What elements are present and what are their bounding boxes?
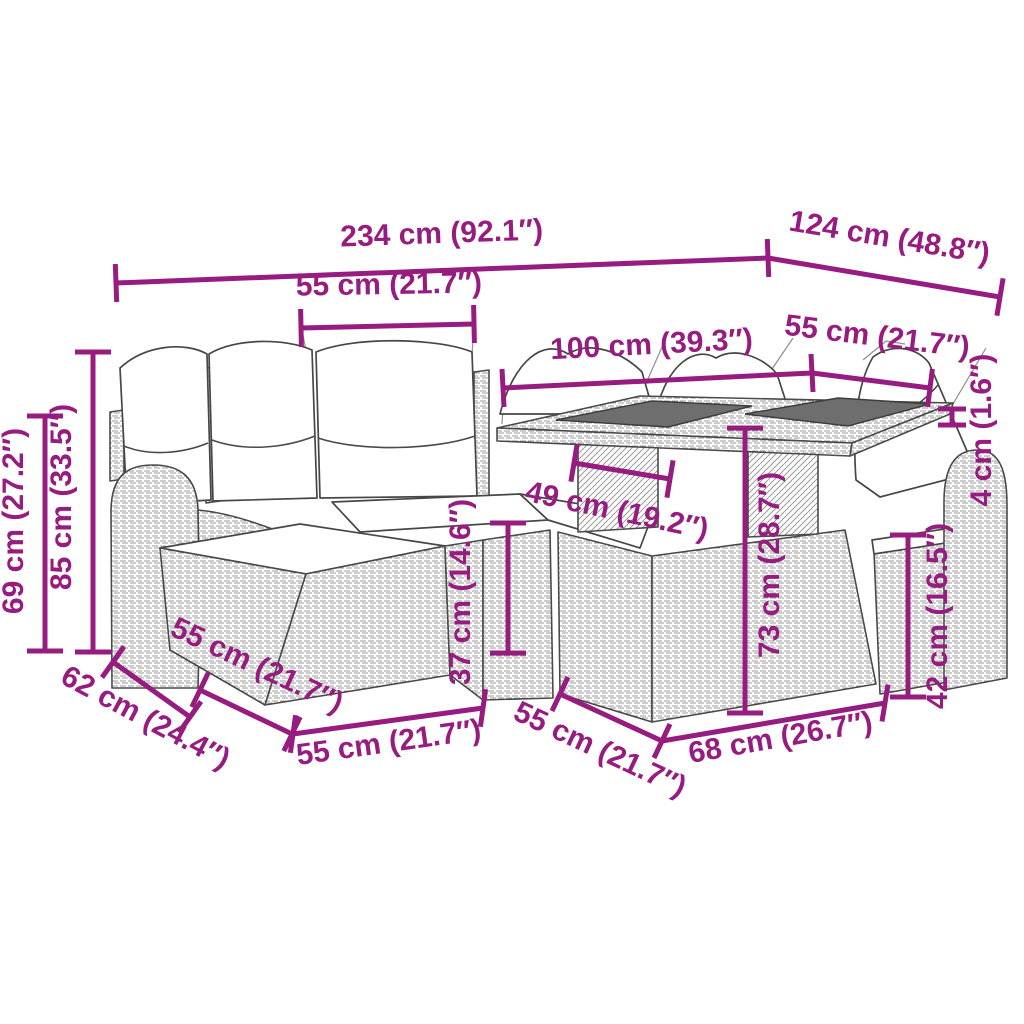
- back-cushion-2: [209, 341, 317, 501]
- seat-cushion-left: [332, 494, 548, 532]
- dim-arm-height-label: 69 cm (27.2″): [0, 428, 30, 614]
- dim-chair-seat-height-label: 42 cm (16.5″): [921, 523, 954, 709]
- dim-back-height: 85 cm (33.5″): [45, 352, 111, 652]
- dim-total-width-label: 234 cm (92.1″): [340, 213, 544, 253]
- dim-seat-height-label: 37 cm (14.6″): [444, 499, 477, 685]
- dim-glass-thickness-label: 4 cm (1.6″): [965, 354, 998, 507]
- table-base-left-face: [558, 532, 652, 722]
- dim-total-depth: 124 cm (48.8″): [768, 205, 1003, 316]
- dim-total-depth-label: 124 cm (48.8″): [787, 205, 992, 271]
- middle-base-front: [483, 530, 553, 700]
- furniture-line-art: 234 cm (92.1″) 124 cm (48.8″) 55 cm (21.…: [0, 0, 1024, 1024]
- dim-seat-width-label: 55 cm (21.7″): [295, 266, 482, 302]
- dim-seat-width: 55 cm (21.7″): [295, 266, 482, 347]
- dim-table-base-width-label: 68 cm (26.7″): [686, 705, 875, 770]
- dim-table-height-label: 73 cm (28.7″): [753, 472, 786, 658]
- dim-back-height-label: 85 cm (33.5″): [45, 404, 78, 590]
- product-dimension-diagram: 234 cm (92.1″) 124 cm (48.8″) 55 cm (21.…: [0, 0, 1024, 1024]
- back-cushion-3: [316, 341, 477, 498]
